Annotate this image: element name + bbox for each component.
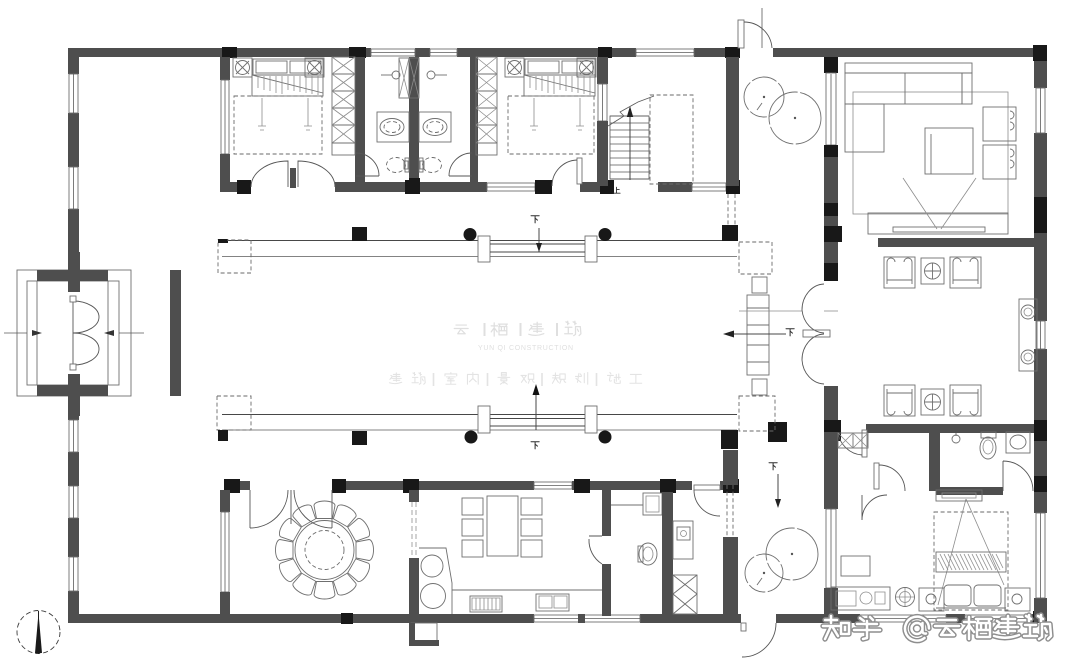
svg-text:YUN QI CONSTRUCTION: YUN QI CONSTRUCTION — [478, 345, 574, 352]
